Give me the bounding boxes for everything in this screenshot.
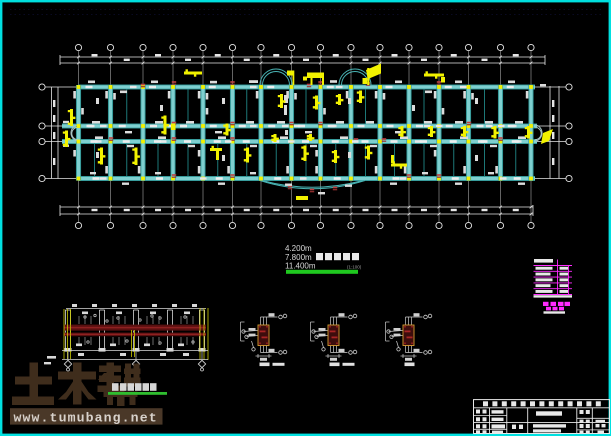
svg-text:(1:100): (1:100) bbox=[347, 265, 362, 270]
svg-text:www.tumubang.net: www.tumubang.net bbox=[14, 410, 158, 425]
svg-text:4.200m: 4.200m bbox=[285, 244, 312, 253]
svg-text:11.400m: 11.400m bbox=[285, 261, 316, 270]
